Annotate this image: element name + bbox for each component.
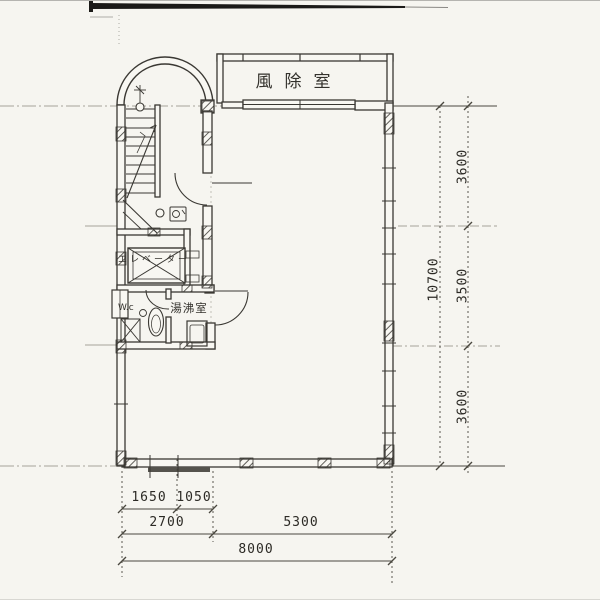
dim-right-segment-middle: 3500 bbox=[456, 256, 471, 316]
room-label-kitchenette: 湯沸室 bbox=[166, 300, 212, 316]
window-ticks bbox=[114, 168, 396, 433]
dim-bottom-mid-right: 5300 bbox=[271, 515, 331, 530]
dim-right-overall: 10700 bbox=[427, 250, 442, 310]
dim-bottom-overall: 8000 bbox=[226, 542, 286, 557]
dimension-lines bbox=[118, 96, 505, 583]
scan-artifact-top-bar bbox=[89, 1, 448, 45]
dim-right-segment-bottom: 3600 bbox=[456, 377, 471, 437]
dim-bottom-upper-right: 1050 bbox=[164, 490, 224, 505]
dim-bottom-mid-left: 2700 bbox=[137, 515, 197, 530]
hand-basin bbox=[170, 207, 186, 221]
room-label-elevator: エレベーター bbox=[114, 252, 194, 265]
scanned-floor-plan-page: 風除室 エレベーター W.c 湯沸室 3600 3500 3600 10700 … bbox=[0, 0, 600, 600]
room-label-vestibule: 風除室 bbox=[244, 67, 354, 92]
room-label-toilet: W.c bbox=[118, 303, 134, 313]
dim-right-segment-top: 3600 bbox=[456, 137, 471, 197]
stair-tower-arc bbox=[117, 57, 213, 105]
